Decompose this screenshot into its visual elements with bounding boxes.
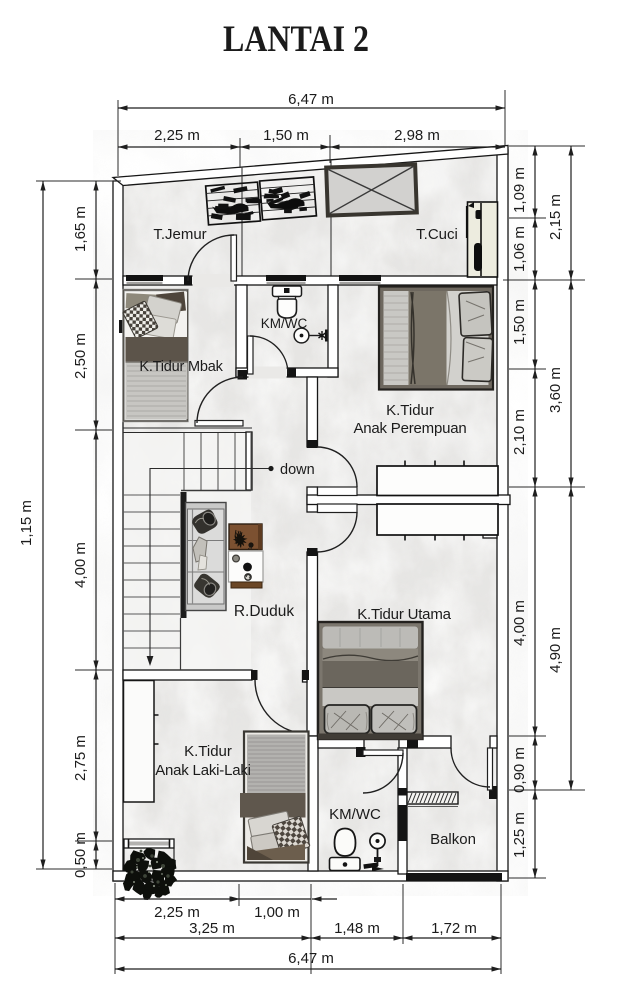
svg-text:6,47 m: 6,47 m xyxy=(288,950,334,967)
svg-text:1,09 m: 1,09 m xyxy=(511,167,528,213)
svg-text:LANTAI 2: LANTAI 2 xyxy=(223,19,369,60)
svg-text:K.Tidur: K.Tidur xyxy=(184,743,232,760)
svg-text:1,48 m: 1,48 m xyxy=(334,920,380,937)
svg-text:KM/WC: KM/WC xyxy=(261,316,308,331)
svg-text:1,00 m: 1,00 m xyxy=(254,904,300,921)
svg-text:0,90 m: 0,90 m xyxy=(511,747,528,793)
svg-text:1,72 m: 1,72 m xyxy=(431,920,477,937)
svg-text:down: down xyxy=(280,462,315,478)
svg-text:2,10 m: 2,10 m xyxy=(511,409,528,455)
svg-text:2,25 m: 2,25 m xyxy=(154,127,200,144)
svg-text:Anak Perempuan: Anak Perempuan xyxy=(353,420,466,437)
svg-text:2,50 m: 2,50 m xyxy=(72,333,89,379)
svg-text:♫: ♫ xyxy=(247,542,253,551)
svg-text:K.Tidur Mbak: K.Tidur Mbak xyxy=(139,359,223,375)
svg-text:4,00 m: 4,00 m xyxy=(511,600,528,646)
svg-text:1,50 m: 1,50 m xyxy=(263,127,309,144)
svg-text:2,75 m: 2,75 m xyxy=(72,735,89,781)
svg-text:T.Cuci: T.Cuci xyxy=(416,226,458,243)
svg-text:K.Tidur Utama: K.Tidur Utama xyxy=(357,606,451,623)
svg-text:R.Duduk: R.Duduk xyxy=(234,603,295,620)
svg-text:KM/WC: KM/WC xyxy=(329,806,381,823)
svg-text:0,50 m: 0,50 m xyxy=(72,832,89,878)
svg-text:K.Tidur: K.Tidur xyxy=(386,402,434,419)
svg-text:1,06 m: 1,06 m xyxy=(511,226,528,272)
svg-text:1,25 m: 1,25 m xyxy=(511,812,528,858)
svg-text:2,98 m: 2,98 m xyxy=(394,127,440,144)
svg-text:Balkon: Balkon xyxy=(430,831,476,848)
svg-text:4,90 m: 4,90 m xyxy=(547,627,564,673)
svg-text:1,65 m: 1,65 m xyxy=(72,206,89,252)
svg-text:1,15 m: 1,15 m xyxy=(18,500,35,546)
svg-text:2,25 m: 2,25 m xyxy=(154,904,200,921)
svg-text:4,00 m: 4,00 m xyxy=(72,542,89,588)
svg-text:T.Jemur: T.Jemur xyxy=(153,226,206,243)
svg-text:Anak Laki-Laki: Anak Laki-Laki xyxy=(155,762,251,779)
svg-text:6,47 m: 6,47 m xyxy=(288,91,334,108)
svg-text:3,60 m: 3,60 m xyxy=(547,367,564,413)
svg-text:1,50 m: 1,50 m xyxy=(511,299,528,345)
svg-text:2,15 m: 2,15 m xyxy=(547,194,564,240)
svg-text:3,25 m: 3,25 m xyxy=(189,920,235,937)
